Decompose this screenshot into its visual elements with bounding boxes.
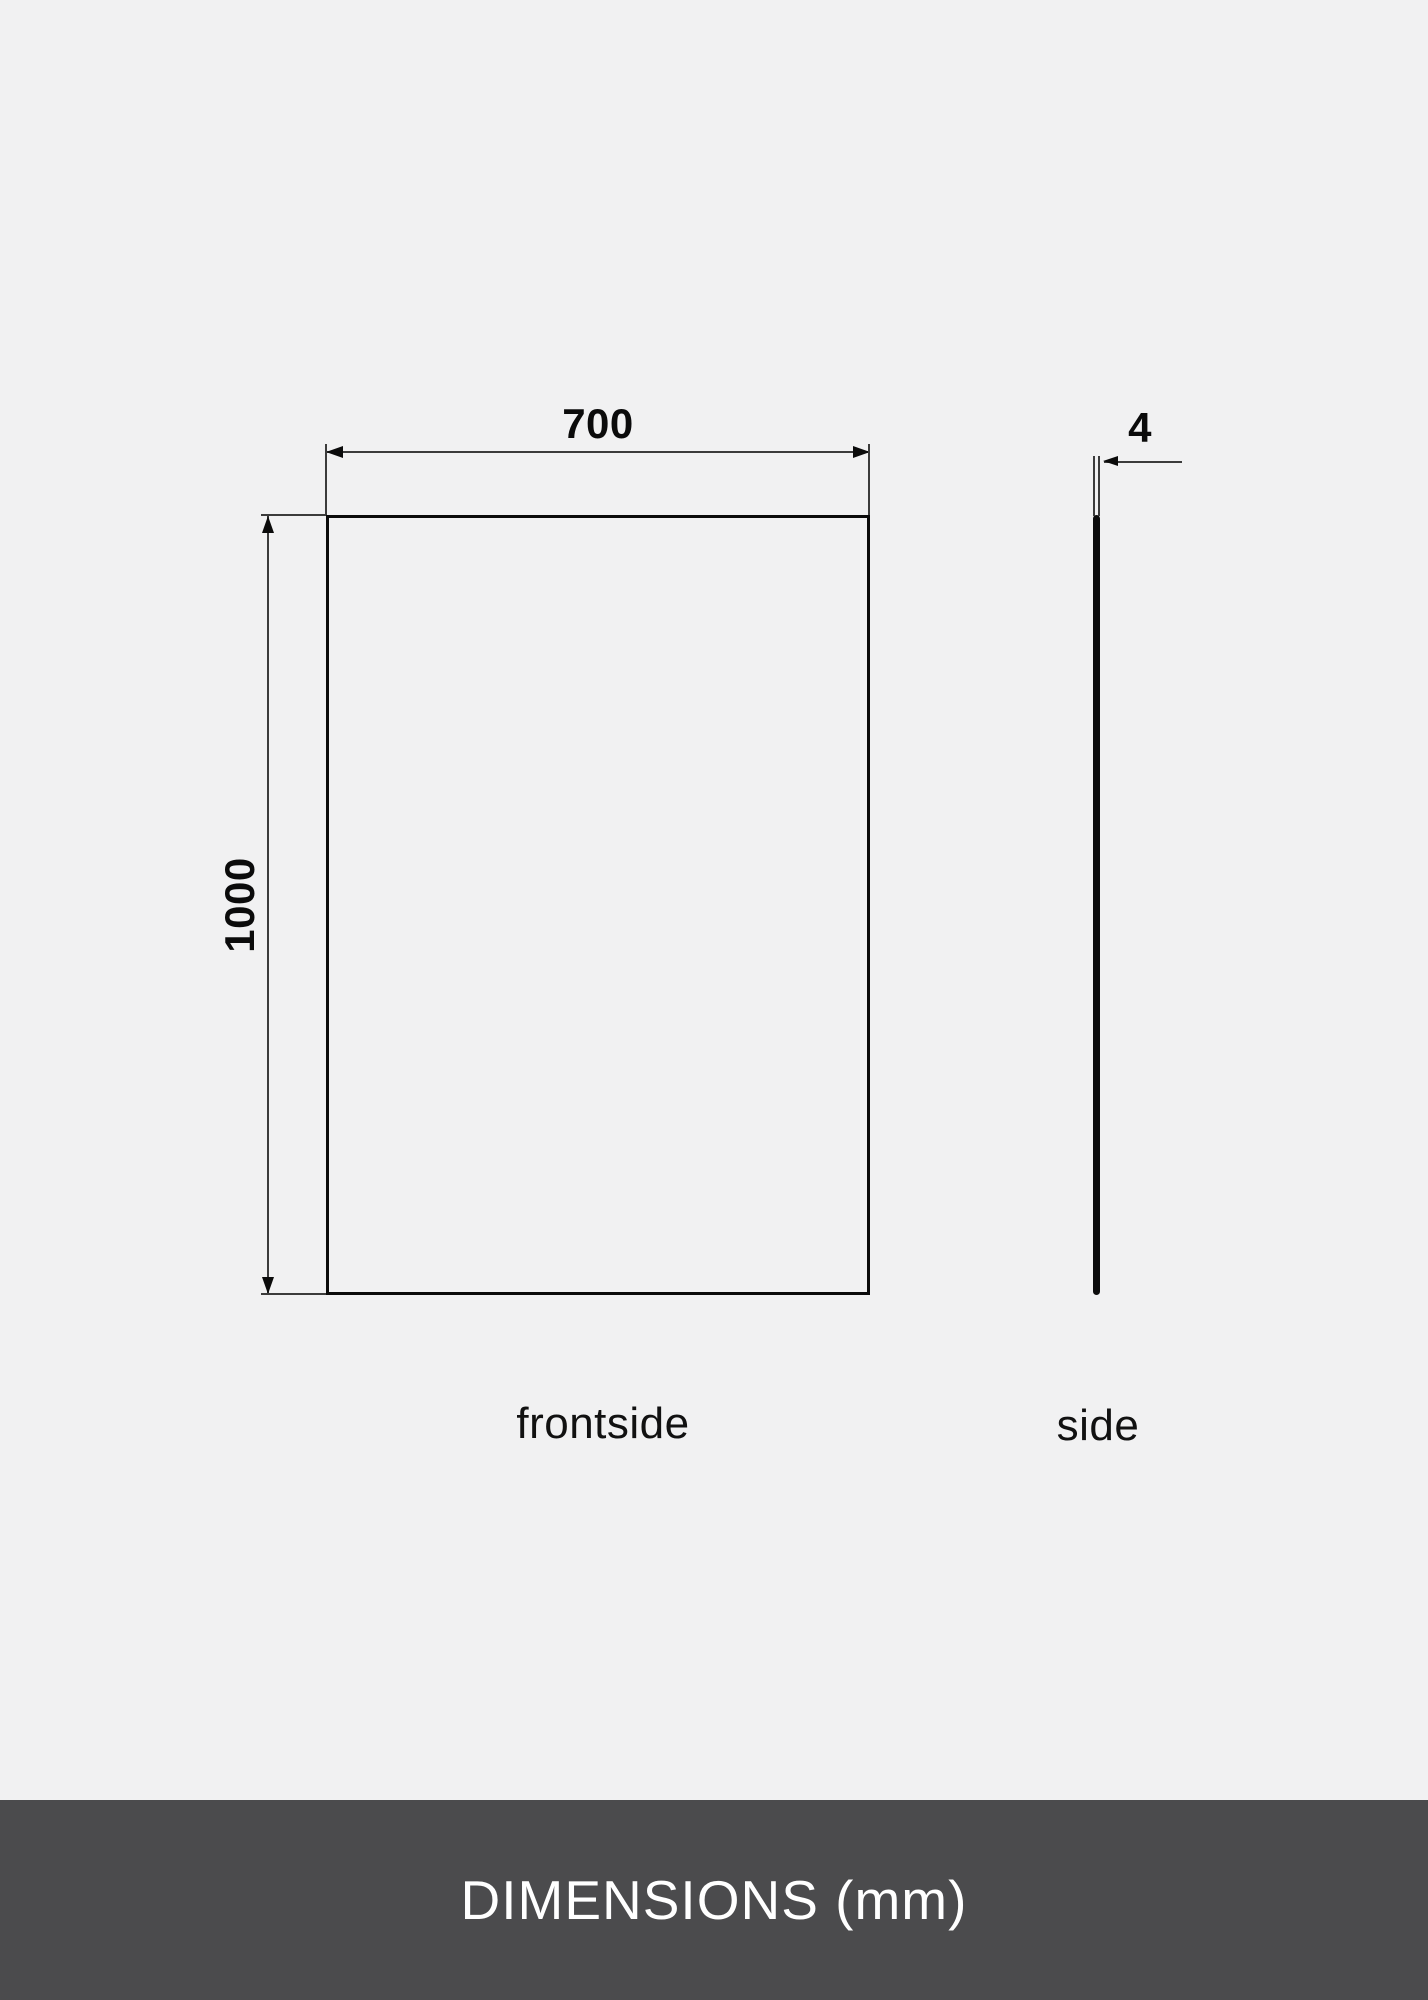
height-extension-line-bottom: [261, 1293, 326, 1295]
height-arrow-down-icon: [262, 1277, 274, 1294]
thickness-extension-line-right: [1098, 456, 1100, 516]
thickness-arrow-left-icon: [1103, 456, 1118, 466]
height-extension-line-top: [261, 514, 326, 516]
height-dimension-label: 1000: [218, 825, 262, 985]
thickness-extension-line-left: [1093, 456, 1095, 516]
footer-bar: DIMENSIONS (mm): [0, 1800, 1428, 2000]
front-view-caption: frontside: [453, 1399, 753, 1449]
footer-title: DIMENSIONS (mm): [461, 1868, 968, 1932]
height-arrow-up-icon: [262, 516, 274, 533]
height-dimension-line: [267, 516, 269, 1294]
width-extension-line-left: [325, 444, 327, 515]
width-extension-line-right: [868, 444, 870, 515]
width-dimension-label: 700: [538, 402, 658, 446]
thickness-dimension-label: 4: [1110, 406, 1170, 450]
width-dimension-line: [326, 451, 870, 453]
side-view-caption: side: [998, 1401, 1198, 1451]
front-view-outline: [326, 515, 870, 1295]
width-arrow-left-icon: [326, 446, 343, 458]
side-view-profile: [1093, 515, 1100, 1295]
dimension-diagram: 700 1000 4 frontside side DIMENSIONS (mm…: [0, 0, 1428, 2000]
